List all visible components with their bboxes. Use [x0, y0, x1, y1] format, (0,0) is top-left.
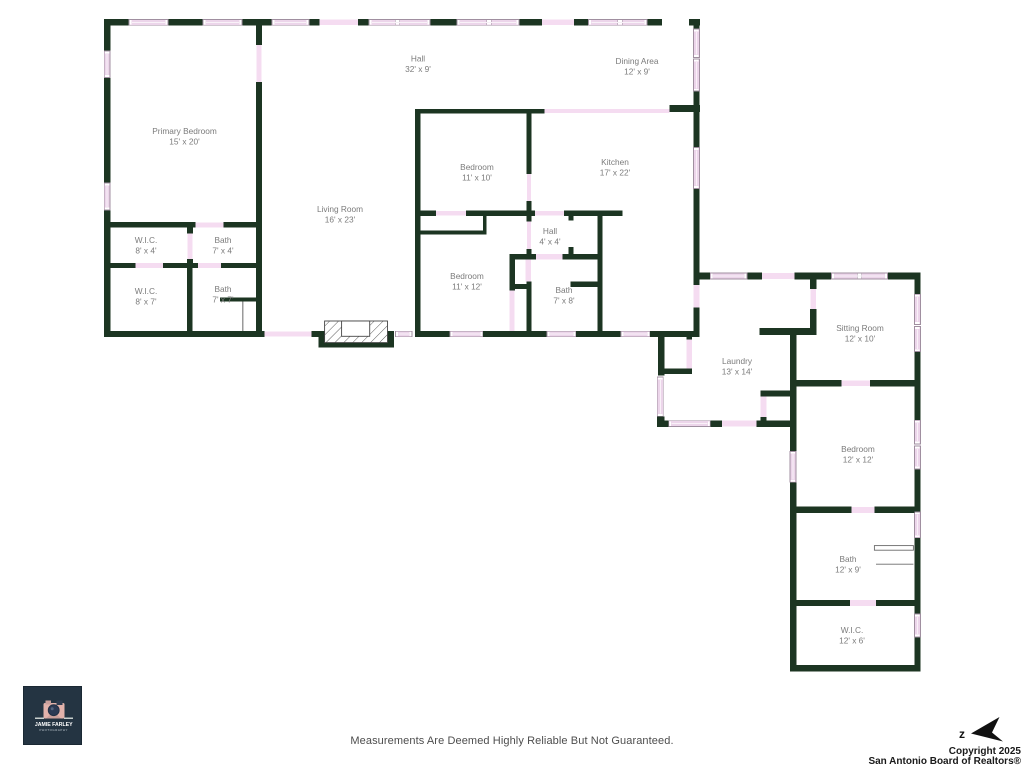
svg-text:Hall: Hall — [543, 226, 557, 236]
svg-text:Bedroom: Bedroom — [450, 271, 484, 281]
svg-text:12' x 12': 12' x 12' — [843, 454, 874, 464]
svg-text:Living Room: Living Room — [317, 204, 363, 214]
svg-text:32' x 9': 32' x 9' — [405, 64, 431, 74]
svg-text:W.I.C.: W.I.C. — [135, 286, 158, 296]
svg-text:12' x 10': 12' x 10' — [845, 333, 876, 343]
svg-text:W.I.C.: W.I.C. — [135, 235, 158, 245]
svg-text:Hall: Hall — [411, 54, 425, 64]
svg-text:13' x 14': 13' x 14' — [722, 366, 753, 376]
svg-text:W.I.C.: W.I.C. — [841, 625, 864, 635]
svg-text:17' x 22': 17' x 22' — [600, 167, 631, 177]
svg-text:7' x 4': 7' x 4' — [212, 245, 234, 255]
svg-text:15' x 20': 15' x 20' — [169, 137, 200, 147]
svg-text:Laundry: Laundry — [722, 356, 753, 366]
svg-text:Sitting Room: Sitting Room — [836, 323, 884, 333]
svg-text:8' x 7': 8' x 7' — [135, 296, 157, 306]
svg-text:Dining Area: Dining Area — [616, 56, 659, 66]
svg-text:16' x 23': 16' x 23' — [325, 214, 356, 224]
svg-text:Bath: Bath — [214, 284, 231, 294]
svg-text:Primary Bedroom: Primary Bedroom — [152, 126, 217, 136]
svg-text:4' x 4': 4' x 4' — [539, 236, 561, 246]
svg-text:Bath: Bath — [555, 285, 572, 295]
svg-text:12' x 6': 12' x 6' — [839, 635, 865, 645]
svg-text:Bath: Bath — [214, 235, 231, 245]
svg-text:Bedroom: Bedroom — [460, 162, 494, 172]
svg-text:8' x 4': 8' x 4' — [135, 245, 157, 255]
svg-text:Bedroom: Bedroom — [841, 444, 875, 454]
svg-text:PHOTOGRAPHY: PHOTOGRAPHY — [39, 728, 67, 732]
svg-text:Bath: Bath — [839, 554, 856, 564]
svg-text:7' x 8': 7' x 8' — [553, 295, 575, 305]
svg-text:11' x 10': 11' x 10' — [462, 172, 492, 182]
svg-text:Kitchen: Kitchen — [601, 157, 629, 167]
svg-text:JAMIE FARLEY: JAMIE FARLEY — [34, 721, 72, 727]
svg-text:7' x 7': 7' x 7' — [212, 294, 234, 304]
svg-text:12' x 9': 12' x 9' — [624, 66, 650, 76]
svg-text:12' x 9': 12' x 9' — [835, 564, 861, 574]
svg-text:11' x 12': 11' x 12' — [452, 281, 482, 291]
